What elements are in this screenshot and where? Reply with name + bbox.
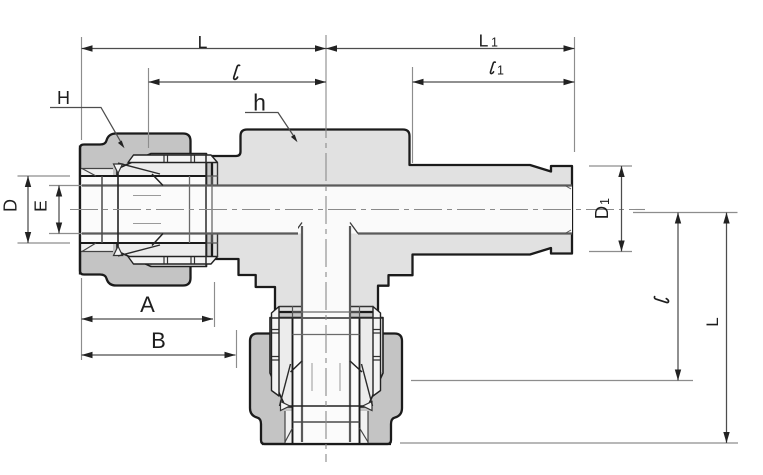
svg-text:D: D (1, 199, 21, 212)
svg-text:D: D (591, 206, 612, 219)
svg-text:h: h (253, 90, 266, 116)
svg-text:1: 1 (598, 198, 612, 205)
svg-text:L: L (703, 317, 722, 326)
svg-text:A: A (140, 292, 155, 317)
svg-text:H: H (57, 88, 70, 108)
svg-text:E: E (31, 200, 51, 212)
svg-text:L: L (198, 32, 208, 52)
svg-text:1: 1 (497, 64, 504, 78)
svg-text:L: L (479, 31, 489, 51)
svg-text:B: B (151, 328, 166, 353)
svg-text:1: 1 (491, 36, 498, 50)
